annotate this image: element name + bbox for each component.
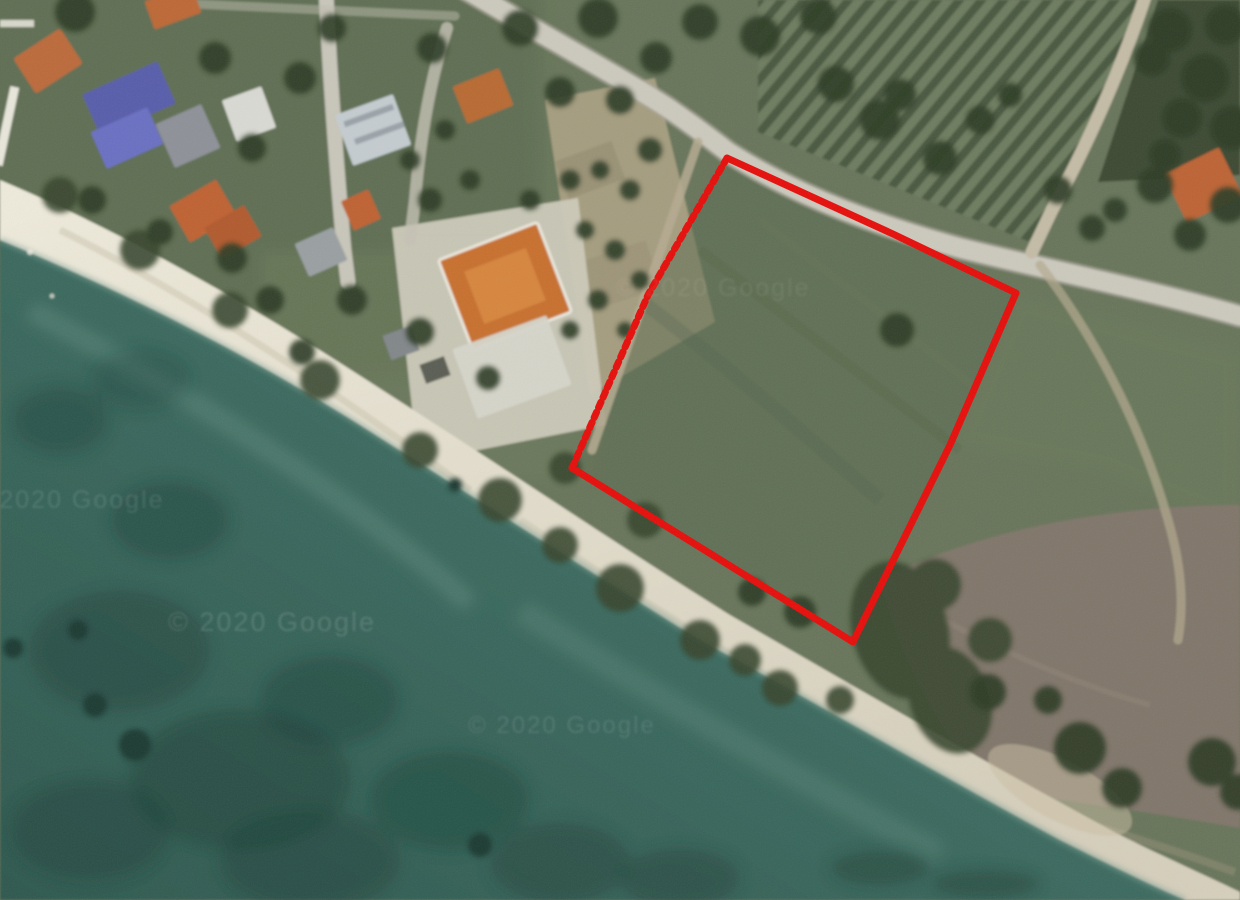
grain-overlay xyxy=(0,0,1240,900)
satellite-map: © 2020 Google © 2020 Google © 2020 Googl… xyxy=(0,0,1240,900)
satellite-imagery xyxy=(0,0,1240,900)
